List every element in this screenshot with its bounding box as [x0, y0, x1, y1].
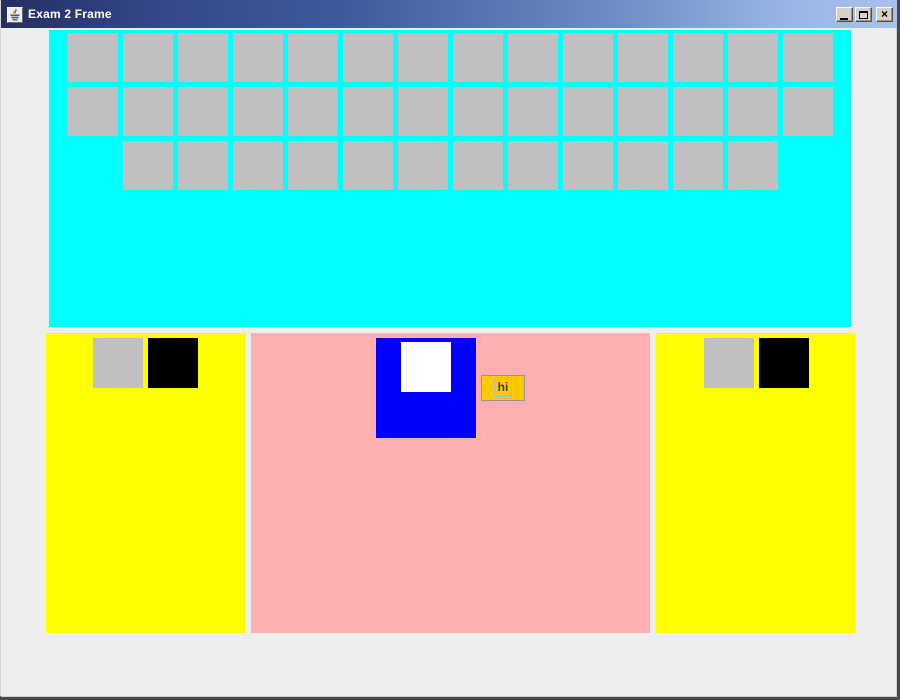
grid-button[interactable] [673, 141, 723, 190]
grid-button[interactable] [68, 33, 118, 82]
grid-button[interactable] [618, 33, 668, 82]
grid-button[interactable] [563, 87, 613, 136]
minimize-icon [840, 18, 848, 20]
gray-square[interactable] [704, 338, 754, 388]
grid-button[interactable] [233, 87, 283, 136]
grid-button[interactable] [288, 33, 338, 82]
grid-button[interactable] [233, 33, 283, 82]
grid-button[interactable] [618, 141, 668, 190]
grid-button[interactable] [563, 33, 613, 82]
grid-button[interactable] [178, 33, 228, 82]
grid-button[interactable] [288, 141, 338, 190]
grid-button[interactable] [508, 33, 558, 82]
grid-button[interactable] [398, 141, 448, 190]
minimize-button[interactable] [836, 7, 853, 22]
blue-panel [376, 338, 476, 438]
grid-button[interactable] [123, 141, 173, 190]
yellow-panel-right [656, 333, 856, 633]
cyan-button-grid-panel [49, 30, 851, 327]
grid-button[interactable] [673, 33, 723, 82]
grid-button[interactable] [508, 87, 558, 136]
grid-button[interactable] [453, 33, 503, 82]
grid-button[interactable] [453, 141, 503, 190]
grid-button[interactable] [783, 33, 833, 82]
window-controls: × [834, 7, 893, 22]
window-title: Exam 2 Frame [28, 7, 112, 21]
grid-button[interactable] [233, 141, 283, 190]
grid-button[interactable] [618, 87, 668, 136]
grid-button[interactable] [728, 141, 778, 190]
grid-button[interactable] [398, 33, 448, 82]
maximize-icon [859, 11, 868, 19]
screenshot-root: Exam 2 Frame × hi [0, 0, 900, 700]
pink-center-panel: hi [251, 333, 650, 633]
maximize-button[interactable] [855, 7, 872, 22]
grid-button[interactable] [783, 87, 833, 136]
grid-button[interactable] [123, 87, 173, 136]
close-icon: × [881, 8, 888, 20]
grid-button[interactable] [343, 141, 393, 190]
black-square[interactable] [148, 338, 198, 388]
grid-button[interactable] [453, 87, 503, 136]
black-square[interactable] [759, 338, 809, 388]
grid-button[interactable] [563, 141, 613, 190]
grid-button[interactable] [343, 87, 393, 136]
white-square [401, 342, 451, 392]
grid-button[interactable] [508, 141, 558, 190]
java-coffee-cup-icon[interactable] [7, 7, 23, 23]
grid-button[interactable] [673, 87, 723, 136]
grid-button[interactable] [728, 87, 778, 136]
grid-button[interactable] [123, 33, 173, 82]
gray-square[interactable] [93, 338, 143, 388]
grid-button[interactable] [728, 33, 778, 82]
yellow-panel-left [46, 333, 245, 633]
grid-button[interactable] [398, 87, 448, 136]
close-button[interactable]: × [876, 7, 893, 22]
grid-button[interactable] [178, 141, 228, 190]
app-window: Exam 2 Frame × hi [0, 0, 896, 696]
hi-button-label: hi [494, 379, 513, 396]
grid-button[interactable] [343, 33, 393, 82]
grid-button[interactable] [288, 87, 338, 136]
grid-button[interactable] [68, 87, 118, 136]
hi-button[interactable]: hi [481, 375, 525, 401]
grid-button[interactable] [178, 87, 228, 136]
titlebar[interactable]: Exam 2 Frame × [1, 0, 897, 28]
